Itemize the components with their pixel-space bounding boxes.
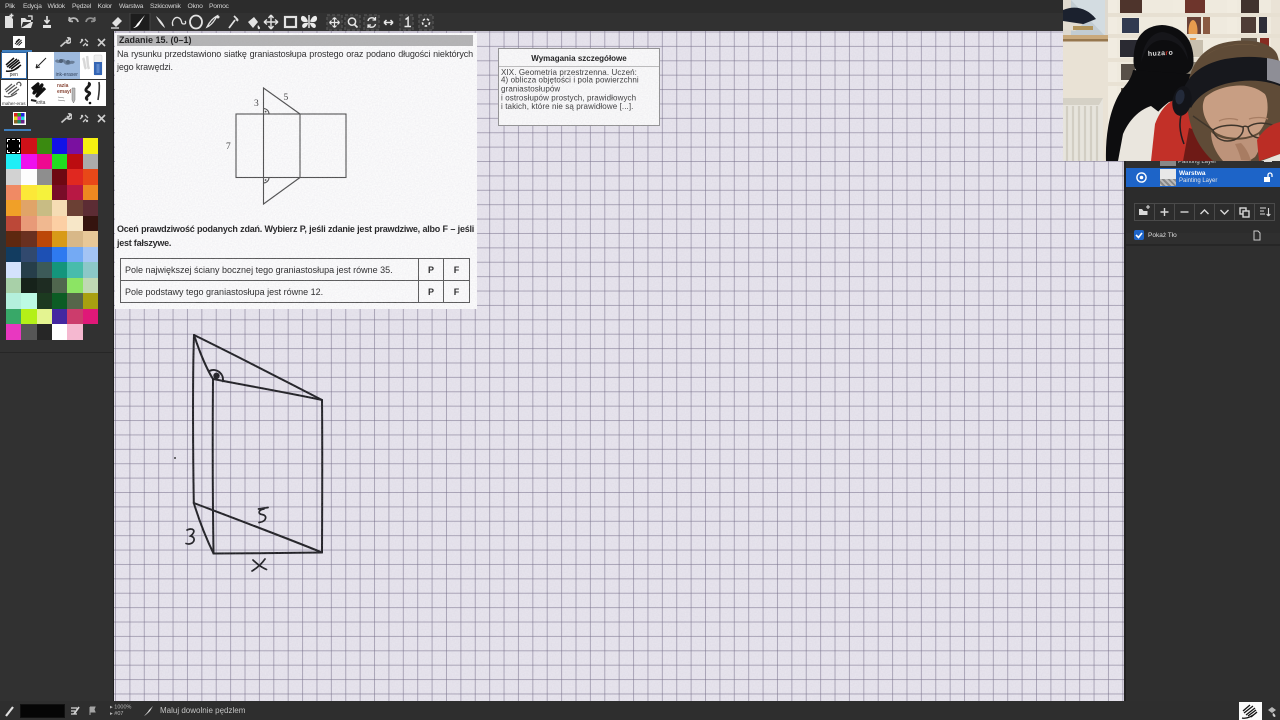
- svg-text:emayl: emayl: [57, 89, 72, 95]
- svg-text:huzaro: huzaro: [1148, 50, 1174, 58]
